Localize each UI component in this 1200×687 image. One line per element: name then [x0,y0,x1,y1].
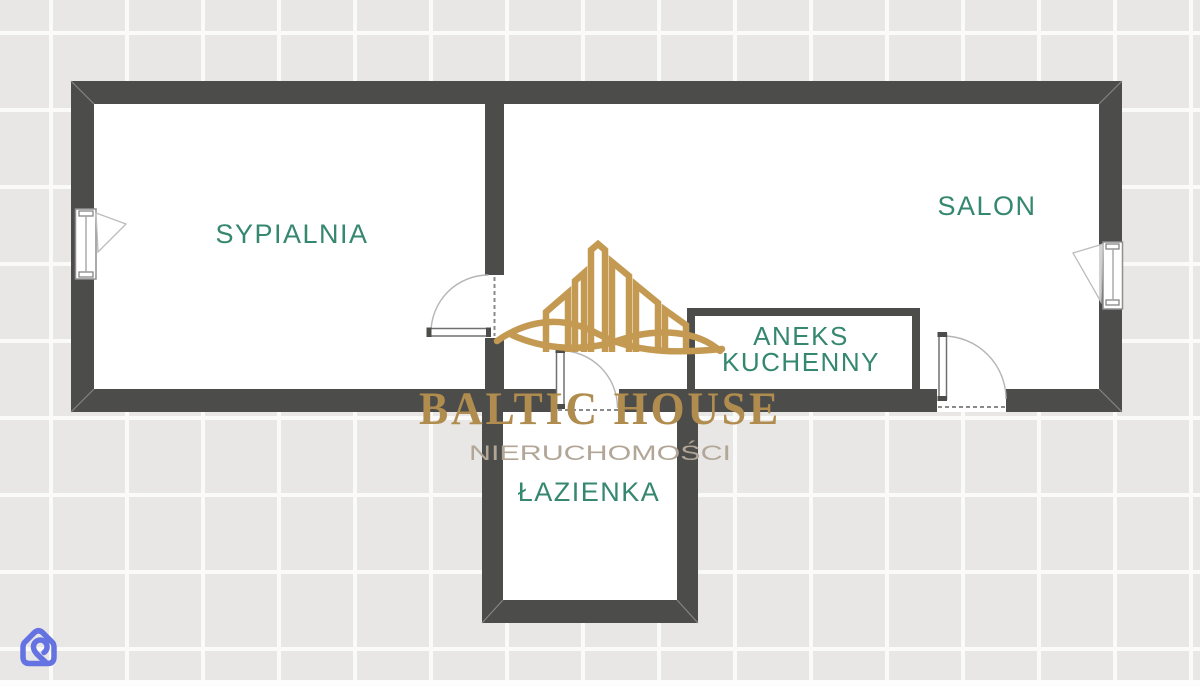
watermark-tagline-text: NIERUCHOMOŚCI [469,441,731,465]
bedroom-label: SYPIALNIA [215,219,368,249]
kitchenette-wall-right [912,316,920,389]
divider-wall-lower [485,338,504,389]
living-room-label: SALON [937,191,1036,221]
image-bottom-edge [0,680,1200,687]
watermark-brand-text: BALTIC HOUSE [419,383,781,435]
divider-wall-upper [485,104,504,275]
bathroom-label: ŁAZIENKA [518,477,661,507]
entrance-door-opening [937,389,1006,412]
walls-and-floors [71,81,1122,623]
otodom-house-icon [23,631,54,664]
floorplan-svg: SYPIALNIA SALON ANEKS KUCHENNY ŁAZIENKA … [0,0,1200,687]
floorplan-image: SYPIALNIA SALON ANEKS KUCHENNY ŁAZIENKA … [0,0,1200,687]
kitchenette-label-line2: KUCHENNY [722,347,880,377]
kitchenette-wall-top [687,308,920,316]
